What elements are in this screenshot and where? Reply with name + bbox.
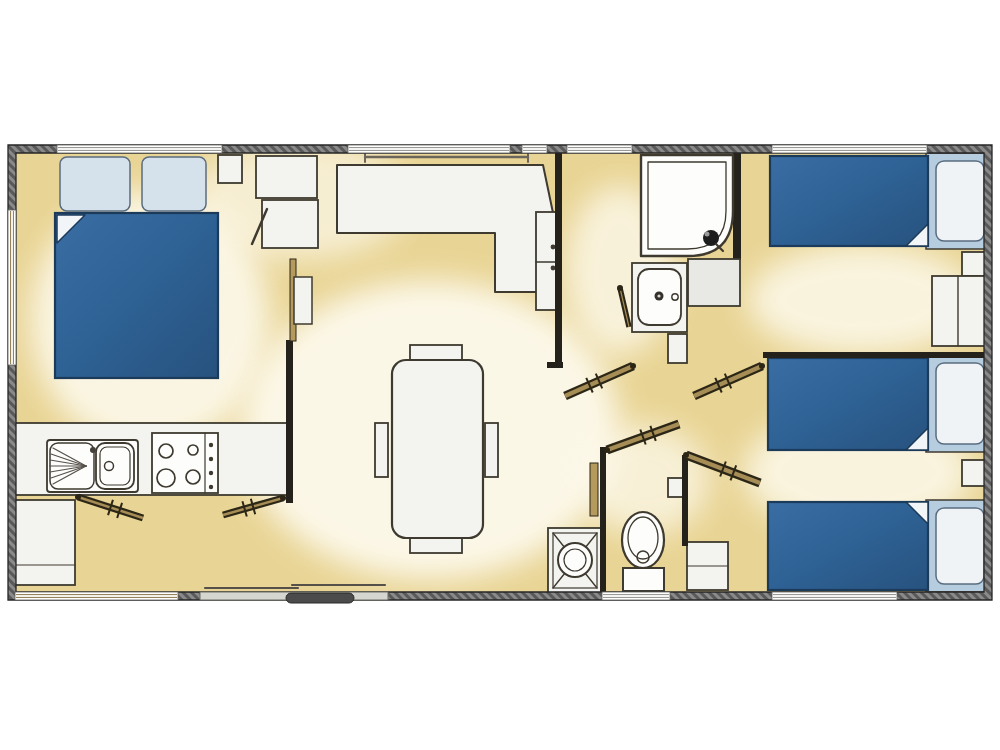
kitchen-tall-cabinet [536, 212, 558, 310]
kitchen-cabinet [10, 500, 75, 585]
washbasin-drain-dot [657, 294, 660, 297]
burner [188, 445, 198, 455]
dining-table [392, 360, 483, 538]
window-bedroom-1 [772, 145, 927, 153]
single-bed-2-pillow [936, 363, 984, 444]
chair [410, 538, 462, 553]
towel-rail-hinge [617, 285, 623, 291]
door-wc-hinge [604, 447, 610, 453]
window-master [57, 145, 222, 153]
wall-wc-right [682, 455, 688, 546]
wall-master [286, 340, 293, 503]
sliding-door-panel [294, 277, 312, 324]
master-wardrobe-bottom [262, 200, 318, 248]
hob-knob [209, 485, 213, 489]
toilet-cistern [623, 568, 664, 591]
window-bedroom-3 [772, 592, 897, 600]
wall-bathroom [555, 150, 562, 368]
wall-bedrooms [763, 352, 992, 358]
cabinet-door-open-hinge [280, 495, 286, 501]
wall-wc-left [600, 447, 606, 592]
wall-bathroom-cap [547, 362, 563, 368]
hob-knob [209, 443, 213, 447]
water-heater-drum [558, 543, 592, 577]
burner [186, 470, 200, 484]
window-wc [602, 592, 670, 600]
wc-shelf [668, 478, 684, 497]
window-living [348, 145, 510, 153]
window-shower [567, 145, 632, 153]
floor-plan-svg [0, 0, 1000, 750]
single-bed-1-pillow [936, 161, 984, 241]
floor-plan-figure [0, 0, 1000, 750]
chair [375, 423, 388, 477]
cabinet-knob [551, 266, 556, 271]
shower-head-highlight [705, 232, 710, 237]
single-bed-3-mattress [768, 502, 928, 590]
cabinet-knob [551, 245, 556, 250]
single-bed-3-pillow [936, 508, 984, 584]
burner [157, 469, 175, 487]
door-bathroom-hinge [630, 363, 636, 369]
double-bed-mattress [55, 213, 218, 378]
door-bedroom-bottom-hinge [683, 452, 689, 458]
bathroom-counter [688, 259, 740, 306]
burner [159, 444, 173, 458]
wardrobe [932, 276, 988, 346]
single-bed-1-mattress [770, 156, 928, 246]
hob-knob [209, 471, 213, 475]
double-bed-pillow-left [60, 157, 130, 211]
double-bed-pillow-right [142, 157, 206, 211]
chair [410, 345, 462, 360]
window-small [522, 145, 547, 153]
bathroom-cabinet [668, 334, 687, 363]
window-kitchen [15, 592, 178, 600]
faucet [90, 447, 96, 453]
wc-rail [590, 463, 598, 516]
single-bed-2-mattress [768, 358, 928, 450]
entrance-step [286, 593, 354, 603]
master-wardrobe-top [256, 156, 317, 198]
chair [485, 423, 498, 477]
window-left [8, 210, 16, 365]
bedside-shelf [218, 155, 242, 183]
shower-tray [641, 155, 733, 256]
door-bedroom-middle-hinge [759, 363, 765, 369]
hob-knob [209, 457, 213, 461]
